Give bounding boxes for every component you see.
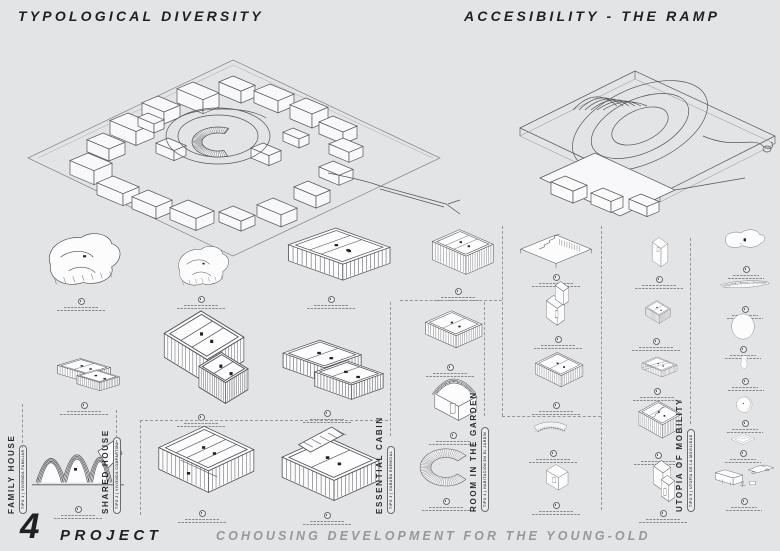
typology-label-room-in-the-garden: ROOM IN THE GARDENTIPO 4 | HABITACIÓN EN…	[478, 416, 498, 512]
figure-blob	[30, 228, 132, 296]
figure-stairHatch	[514, 222, 598, 272]
figure-vehicles	[710, 462, 778, 496]
figure-marker-icon	[455, 288, 462, 295]
typology-title: FAMILY HOUSE	[7, 434, 16, 514]
figure-head	[728, 392, 762, 418]
figure-openBox	[636, 296, 676, 336]
figure-marker-icon	[742, 420, 749, 427]
figure-hatchBox	[418, 228, 498, 286]
figure-caption	[22, 298, 140, 311]
project-label: PROJECT	[60, 527, 162, 544]
typology-subtitle-pill: TIPO 2 | VIVIENDA COMPARTIDA	[113, 437, 121, 514]
dashed-guide	[690, 238, 691, 424]
dashed-guide	[601, 226, 602, 510]
figure-cloud	[716, 228, 776, 264]
figure-towerBox	[536, 280, 580, 334]
typology-subtitle-pill: TIPO 5 | UTOPÍA DE LA MOVILIDAD	[687, 429, 695, 512]
figure-boat	[716, 278, 774, 304]
figure-marker-icon	[78, 298, 85, 305]
typology-label-essential-cabin: ESSENTIAL CABINTIPO 3 | CABAÑA ESENCIAL	[384, 436, 404, 514]
figure-roomL	[266, 336, 388, 408]
typology-title: UTOPIA OF MOBILITY	[675, 398, 684, 512]
typology-label-utopia-of-mobility: UTOPIA OF MOBILITYTIPO 5 | UTOPÍA DE LA …	[684, 424, 704, 512]
dashed-guide	[140, 420, 141, 515]
figure-marker-icon	[553, 402, 560, 409]
typology-label-shared-house: SHARED HOUSETIPO 2 | VIVIENDA COMPARTIDA	[110, 448, 130, 514]
typology-title: ESSENTIAL CABIN	[375, 416, 384, 514]
figure-caption	[728, 378, 762, 391]
dashed-guide	[22, 404, 23, 448]
dashed-guide	[400, 300, 502, 301]
poster: { "page": {"background": "#e3e4e6", "ink…	[0, 0, 780, 551]
figure-bench	[528, 418, 578, 448]
figure-roomBig	[148, 424, 256, 508]
figure-caption	[140, 510, 264, 523]
figure-lwall	[40, 356, 128, 400]
figure-card	[726, 430, 760, 448]
figure-marker-icon	[81, 402, 88, 409]
figure-marker-icon	[741, 498, 748, 505]
dashed-guide	[502, 416, 601, 417]
typology-title: SHARED HOUSE	[101, 429, 110, 514]
figure-roomS	[412, 306, 488, 362]
figure-marker-icon	[743, 266, 750, 273]
figure-marker-icon	[553, 502, 560, 509]
figure-caption	[528, 502, 584, 515]
figure-blob	[165, 242, 237, 294]
project-number: 4	[20, 510, 39, 544]
figure-marker-icon	[740, 346, 747, 353]
dashed-guide	[502, 226, 503, 416]
figure-roomS	[524, 348, 588, 400]
dashed-guide	[140, 420, 388, 421]
figure-caption	[264, 296, 398, 309]
typology-title: ROOM IN THE GARDEN	[469, 391, 478, 512]
figure-marker-icon	[555, 336, 562, 343]
figure-caption	[260, 512, 394, 525]
figure-cube	[536, 460, 576, 500]
figure-roomT	[150, 308, 252, 412]
figure-marker-icon	[450, 432, 457, 439]
dashed-guide	[116, 410, 117, 448]
figure-circleIcon	[722, 310, 764, 344]
dashed-guide	[484, 302, 485, 416]
figure-caption	[628, 338, 684, 351]
figure-marker-icon	[324, 410, 331, 417]
typology-subtitle-pill: TIPO 3 | CABAÑA ESENCIAL	[387, 446, 395, 514]
figure-caption	[634, 276, 684, 289]
figure-marker-icon	[742, 378, 749, 385]
figure-wedge	[632, 352, 682, 386]
figure-marker-icon	[653, 338, 660, 345]
site-axonometric-drawing	[8, 18, 458, 228]
figure-marker-icon	[328, 296, 335, 303]
figure-marker-icon	[656, 276, 663, 283]
typology-subtitle-pill: TIPO 4 | HABITACIÓN EN EL JARDÍN	[481, 427, 489, 512]
dashed-guide	[390, 302, 391, 436]
figure-roomRamp	[268, 422, 386, 510]
right-panel-title: ACCESIBILITY - THE RAMP	[464, 8, 720, 24]
figure-marker-icon	[443, 498, 450, 505]
poster-subtitle: COHOUSING DEVELOPMENT FOR THE YOUNG-OLD	[216, 529, 651, 543]
figure-marker-icon	[660, 510, 667, 517]
typology-label-family-house: FAMILY HOUSETIPO 1 | VIVIENDA FAMILIAR	[16, 448, 36, 514]
figure-caption	[32, 402, 136, 415]
figure-roomOpen	[272, 224, 390, 294]
figure-pouch	[736, 354, 754, 376]
figure-caption	[634, 510, 692, 523]
ramp-axonometric-drawing	[445, 28, 777, 224]
figure-marker-icon	[324, 512, 331, 519]
figure-tallBox	[642, 234, 676, 274]
figure-marker-icon	[75, 506, 82, 513]
figure-marker-icon	[198, 296, 205, 303]
figure-marker-icon	[654, 388, 661, 395]
figure-marker-icon	[740, 450, 747, 457]
figure-marker-icon	[199, 510, 206, 517]
figure-marker-icon	[550, 450, 557, 457]
figure-caption	[702, 498, 780, 511]
typology-subtitle-pill: TIPO 1 | VIVIENDA FAMILIAR	[19, 445, 27, 514]
figure-caption	[516, 402, 596, 415]
